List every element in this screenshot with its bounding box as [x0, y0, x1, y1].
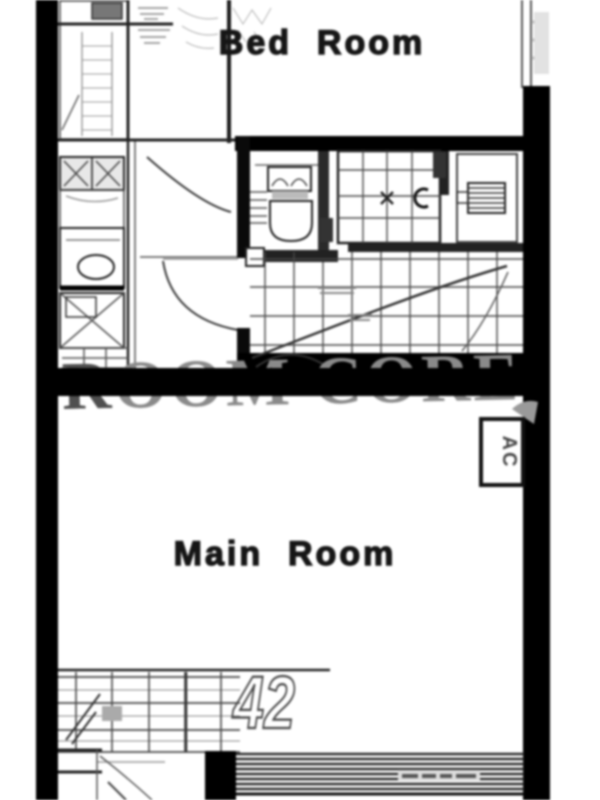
- svg-text:42: 42: [231, 661, 295, 744]
- svg-text:AC: AC: [498, 436, 520, 469]
- svg-text:Bed Room: Bed Room: [219, 24, 425, 62]
- svg-text:Main Room: Main Room: [174, 535, 397, 573]
